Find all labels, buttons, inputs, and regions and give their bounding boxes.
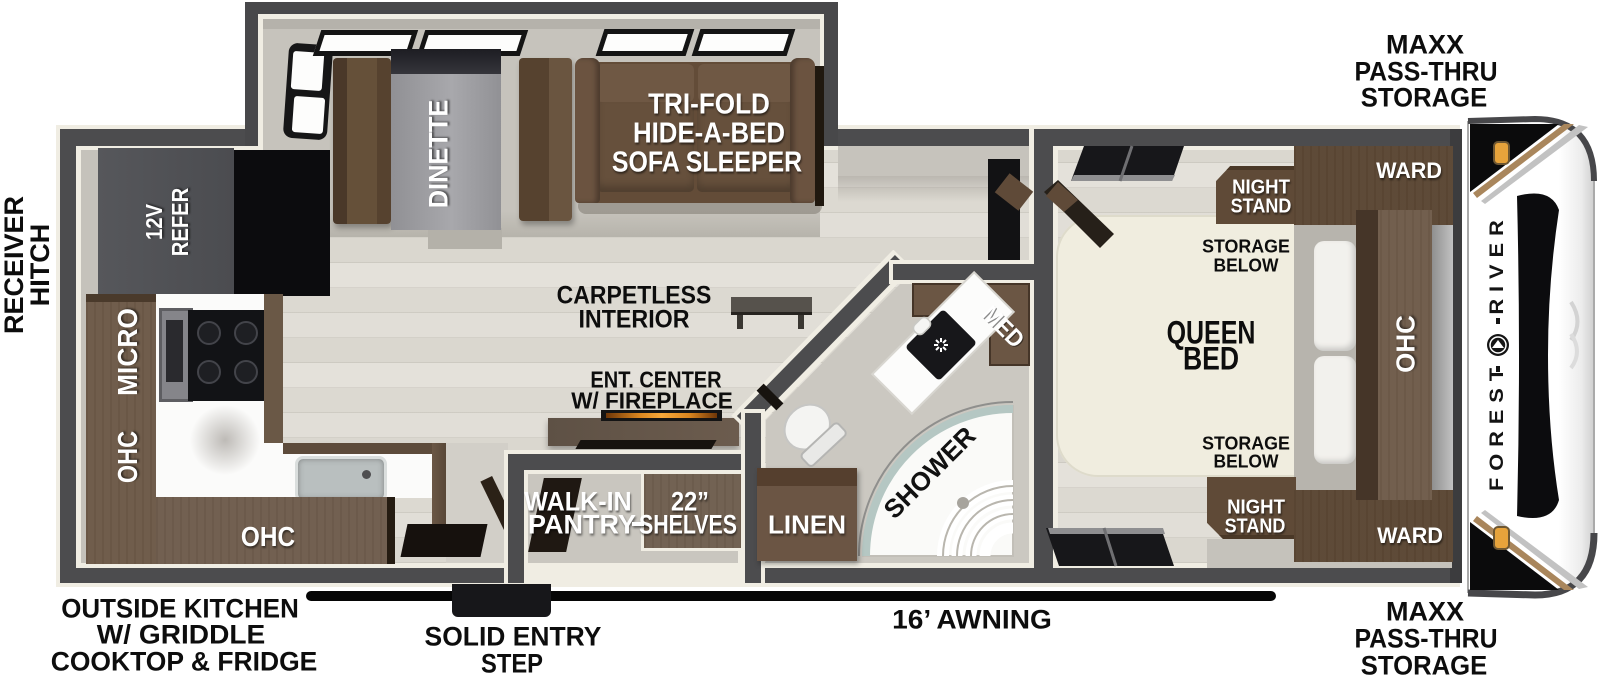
svg-text:RIVER: RIVER: [1486, 213, 1507, 314]
svg-text:FOREST: FOREST: [1486, 361, 1507, 491]
